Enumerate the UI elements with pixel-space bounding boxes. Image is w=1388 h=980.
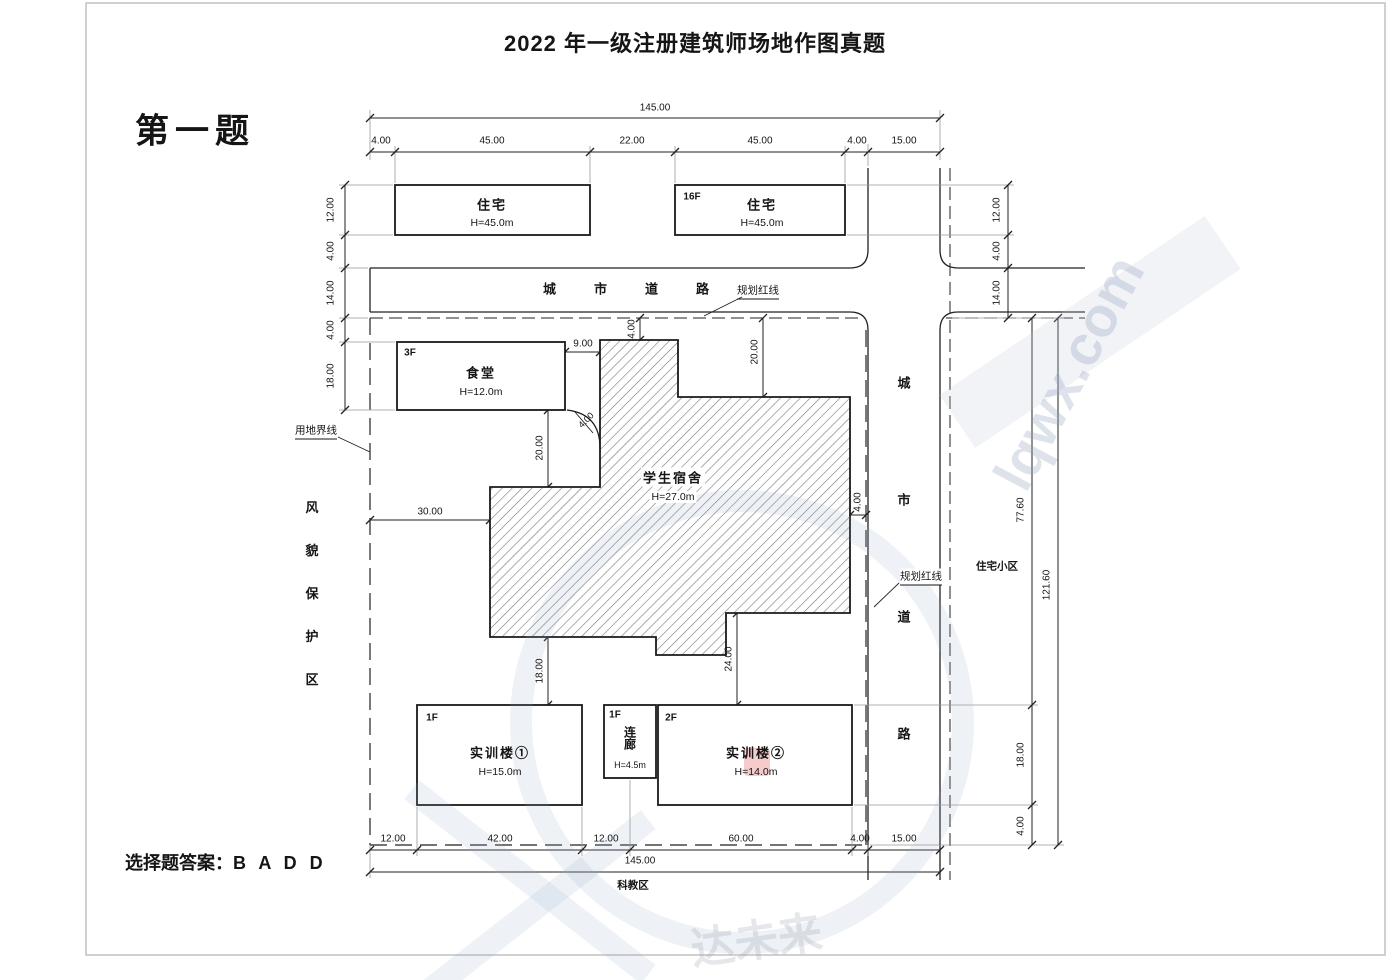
dim-bottom-seg-3: 12.00 — [593, 834, 618, 845]
exam-sheet: lqwx.com 达未来 2022 年一级注册建筑师场地作图真题 第一题 选择题… — [0, 0, 1388, 980]
dim-right-top-2: 4.00 — [992, 241, 1003, 260]
residential-left-name: 住宅 — [477, 195, 507, 214]
residential-right-height: H=45.0m — [741, 217, 784, 229]
area-south-label: 科教区 — [617, 878, 649, 893]
dim-column-setback: 4.00 — [627, 319, 638, 338]
dim-bottom-seg-4: 60.00 — [728, 834, 753, 845]
dim-right-top-3: 14.00 — [992, 280, 1003, 305]
dim-right-inner-1: 77.60 — [1016, 497, 1027, 522]
dim-top-seg-3: 22.00 — [619, 136, 644, 147]
dim-left-1: 12.00 — [326, 197, 337, 222]
dim-right-top-1: 12.00 — [992, 197, 1003, 222]
dim-left-5: 18.00 — [326, 363, 337, 388]
planning-red-line-label-top: 规划红线 — [737, 283, 779, 300]
dim-top-seg-5: 4.00 — [847, 136, 866, 147]
residential-left-height: H=45.0m — [471, 217, 514, 229]
corridor-name: 连廊 — [622, 726, 639, 750]
dim-south-gap-right: 24.00 — [724, 646, 735, 671]
dim-bottom-total: 145.00 — [625, 856, 656, 867]
page-title: 2022 年一级注册建筑师场地作图真题 — [504, 26, 886, 58]
dim-right-outer-total: 121.60 — [1042, 570, 1053, 601]
dim-right-inner-2: 18.00 — [1016, 742, 1027, 767]
dim-canteen-vert-gap: 20.00 — [535, 435, 546, 460]
dim-bottom-seg-2: 42.00 — [487, 834, 512, 845]
dim-top-seg-6: 15.00 — [891, 136, 916, 147]
residential-right-name: 住宅 — [747, 195, 777, 214]
training-right-height: H=14.0m — [735, 766, 778, 778]
answer-line: 选择题答案：B A D D — [125, 849, 323, 875]
training-left-name: 实训楼① — [470, 743, 530, 762]
area-west-label: 风貌保护区 — [302, 501, 321, 716]
planning-red-line-label-right: 规划红线 — [900, 569, 942, 586]
dim-left-2: 4.00 — [326, 241, 337, 260]
dormitory-height: H=27.0m — [650, 491, 697, 503]
training-left-floors: 1F — [426, 713, 438, 724]
training-left-height: H=15.0m — [479, 766, 522, 778]
dim-top-seg-4: 45.00 — [747, 136, 772, 147]
top-road-name: 城市道路 — [543, 279, 747, 298]
training-right-floors: 2F — [665, 713, 677, 724]
dim-left-3: 14.00 — [326, 280, 337, 305]
right-road-name: 城市道路 — [894, 376, 913, 844]
dim-west-gap: 30.00 — [417, 507, 442, 518]
dim-bottom-seg-5: 4.00 — [850, 834, 869, 845]
dim-south-gap-left: 18.00 — [535, 658, 546, 683]
canteen-name: 食堂 — [466, 363, 496, 382]
training-right-name: 实训楼② — [726, 743, 786, 762]
canteen-floors: 3F — [404, 348, 416, 359]
question-label: 第一题 — [135, 104, 255, 153]
dim-left-4: 4.00 — [326, 320, 337, 339]
dim-top-total: 145.00 — [640, 103, 671, 114]
dim-right-inner-3: 4.00 — [1016, 816, 1027, 835]
dim-top-seg-2: 45.00 — [479, 136, 504, 147]
dim-canteen-dorm-gap: 9.00 — [573, 339, 592, 350]
dim-main-setback: 20.00 — [750, 339, 761, 364]
site-boundary-label: 用地界线 — [295, 423, 337, 440]
area-east-label: 住宅小区 — [976, 559, 1018, 574]
dim-east-gap: 4.00 — [853, 492, 864, 511]
dim-bottom-seg-1: 12.00 — [380, 834, 405, 845]
corridor-floors: 1F — [609, 710, 621, 721]
dim-top-seg-1: 4.00 — [371, 136, 390, 147]
corridor-height: H=4.5m — [614, 760, 646, 770]
residential-right-floors: 16F — [683, 192, 700, 203]
canteen-height: H=12.0m — [460, 386, 503, 398]
dormitory-name: 学生宿舍 — [641, 468, 705, 487]
